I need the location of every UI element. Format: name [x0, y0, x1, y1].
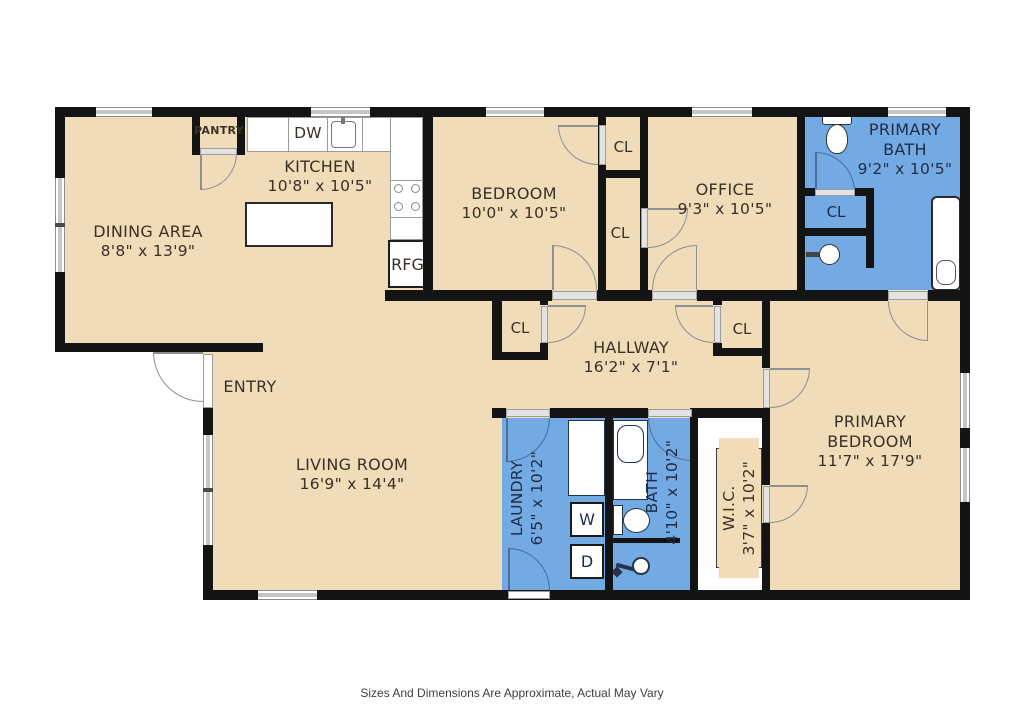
window	[258, 590, 317, 600]
wall-exterior-right	[960, 107, 970, 600]
laundry-counter	[568, 420, 605, 496]
pantry-label: PANTRY	[191, 124, 247, 138]
window	[486, 107, 544, 117]
wall-hall-bottom	[692, 408, 770, 418]
window-mullion	[203, 488, 213, 492]
closet-label: CL	[600, 224, 640, 242]
door-leaf	[696, 245, 698, 290]
dining-name: DINING AREA	[48, 222, 248, 242]
floor-plan: RFG W D	[0, 0, 1024, 723]
bath-label: BATH 4'10" x 10'2"	[642, 417, 682, 567]
door-threshold	[200, 148, 237, 155]
window	[960, 448, 970, 502]
wall-stub	[237, 147, 245, 155]
door-swing-entry	[153, 352, 203, 402]
closet-label: CL	[603, 138, 643, 156]
wall-hall-bottom	[550, 408, 648, 418]
disclaimer-text: Sizes And Dimensions Are Approximate, Ac…	[0, 686, 1024, 700]
door-threshold	[552, 291, 597, 300]
door-leaf	[675, 305, 713, 307]
door-leaf	[770, 368, 810, 370]
tub-fixture-icon	[936, 260, 956, 285]
bath-name: BATH	[642, 417, 662, 567]
wic-dims: 3'7" x 10'2"	[739, 438, 759, 578]
living-room-label: LIVING ROOM 16'9" x 14'4"	[252, 455, 452, 494]
bedroom-dims: 10'0" x 10'5"	[414, 204, 614, 223]
bedroom-name: BEDROOM	[414, 184, 614, 204]
wall-hall-top	[697, 290, 888, 301]
hallway-name: HALLWAY	[531, 338, 731, 358]
primary-bedroom-dims: 11'7" x 17'9"	[810, 452, 930, 471]
wall-primary-bedroom-left	[762, 290, 770, 368]
door-leaf	[548, 305, 586, 307]
wall-stub	[540, 301, 548, 305]
refrigerator: RFG	[388, 240, 427, 288]
wic-name: W.I.C.	[719, 438, 739, 578]
kitchen-sink-icon	[331, 121, 356, 148]
living-room-name: LIVING ROOM	[252, 455, 452, 475]
wall-hall-top	[597, 290, 652, 301]
wall-laundry-bath	[605, 408, 613, 590]
hallway-dims: 16'2" x 7'1"	[531, 358, 731, 377]
window	[692, 107, 752, 117]
primary-bedroom-label: PRIMARY BEDROOM 11'7" x 17'9"	[810, 412, 930, 471]
entry-name: ENTRY	[200, 377, 300, 397]
door-leaf	[153, 352, 203, 354]
wall-bath-wic	[690, 408, 698, 590]
door-leaf	[558, 125, 598, 127]
wall-primary-bedroom-left	[762, 523, 770, 600]
laundry-label: LAUNDRY 6'5" x 10'2"	[507, 423, 547, 573]
primary-bath-dims: 9'2" x 10'5"	[845, 160, 965, 179]
vanity-sink-icon	[617, 425, 644, 463]
wall-closet-divider	[598, 170, 648, 178]
kitchen-name: KITCHEN	[220, 157, 420, 177]
door-threshold	[888, 291, 928, 300]
door-threshold	[652, 291, 697, 300]
door-leaf	[200, 153, 202, 190]
window	[888, 107, 946, 117]
wall-hall-top	[385, 290, 552, 301]
wall-stub	[192, 147, 200, 155]
wall-hall-top	[928, 290, 960, 301]
washer-label: W	[579, 510, 595, 529]
wic-label: W.I.C. 3'7" x 10'2"	[719, 438, 759, 578]
hallway-label: HALLWAY 16'2" x 7'1"	[531, 338, 731, 377]
laundry-name: LAUNDRY	[507, 423, 527, 573]
wall-primary-bedroom-left	[762, 408, 770, 485]
bath-dims: 4'10" x 10'2"	[662, 417, 682, 567]
primary-bath-label: PRIMARY BATH 9'2" x 10'5"	[845, 120, 965, 179]
washer-box: W	[570, 502, 604, 537]
door-leaf	[552, 245, 554, 290]
dining-area-label: DINING AREA 8'8" x 13'9"	[48, 222, 248, 261]
laundry-dims: 6'5" x 10'2"	[527, 423, 547, 573]
window	[311, 107, 370, 117]
dryer-label: D	[581, 552, 593, 571]
closet-label: CL	[500, 319, 540, 337]
dining-dims: 8'8" x 13'9"	[48, 242, 248, 261]
kitchen-dims: 10'8" x 10'5"	[220, 177, 420, 196]
kitchen-label: KITCHEN 10'8" x 10'5"	[220, 157, 420, 196]
wall-dining-bottom	[55, 343, 263, 352]
refrigerator-label: RFG	[391, 255, 424, 274]
primary-bath-name: PRIMARY BATH	[845, 120, 965, 160]
dishwasher-label: DW	[288, 124, 328, 143]
living-room-dims: 16'9" x 14'4"	[252, 475, 452, 494]
door-threshold	[763, 369, 770, 408]
kitchen-island	[245, 202, 333, 247]
stove-burner-icon	[394, 202, 403, 211]
laundry-door-threshold	[508, 591, 550, 599]
wall-hall-bottom	[492, 408, 506, 418]
bedroom-label: BEDROOM 10'0" x 10'5"	[414, 184, 614, 223]
office-label: OFFICE 9'3" x 10'5"	[625, 180, 825, 219]
closet-label: CL	[722, 320, 762, 338]
wall-bath-closet-bottom	[805, 228, 874, 236]
door-leaf	[770, 485, 808, 487]
dryer-box: D	[570, 544, 604, 579]
door-threshold	[763, 486, 770, 523]
kitchen-faucet-icon	[341, 117, 345, 124]
closet-label: CL	[816, 203, 856, 221]
toilet-tank-icon	[613, 505, 623, 535]
office-dims: 9'3" x 10'5"	[625, 200, 825, 219]
office-name: OFFICE	[625, 180, 825, 200]
door-leaf	[927, 301, 929, 341]
window	[960, 373, 970, 428]
round-sink-icon	[819, 244, 840, 265]
wall-stub	[713, 301, 722, 305]
primary-bedroom-name: PRIMARY BEDROOM	[810, 412, 930, 452]
door-threshold	[506, 409, 550, 417]
wall-exterior-bottom	[203, 590, 970, 600]
door-threshold	[648, 409, 692, 417]
counter-divider	[362, 117, 363, 152]
window	[96, 107, 152, 117]
entry-label: ENTRY	[200, 377, 300, 397]
